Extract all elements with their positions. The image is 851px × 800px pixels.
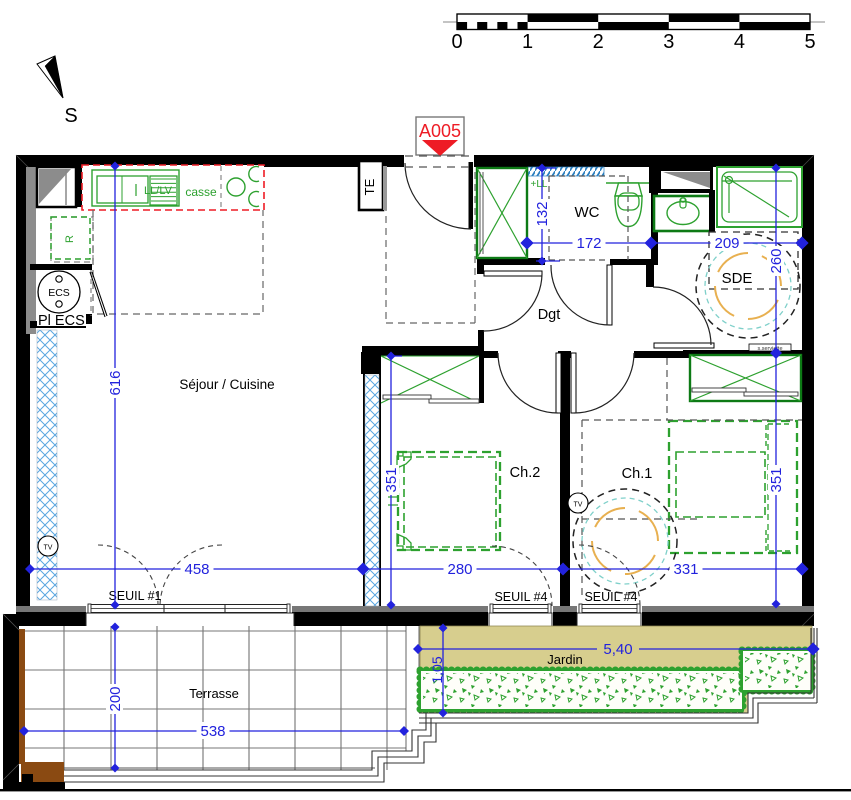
svg-text:172: 172 [576, 235, 601, 252]
svg-text:4: 4 [734, 31, 745, 53]
svg-text:458: 458 [184, 561, 209, 578]
svg-text:+LL: +LL [531, 179, 548, 190]
svg-text:Séjour / Cuisine: Séjour / Cuisine [179, 377, 274, 392]
svg-text:casse: casse [185, 185, 217, 199]
svg-text:616: 616 [107, 370, 124, 395]
svg-text:132: 132 [534, 201, 551, 226]
svg-text:Terrasse: Terrasse [189, 686, 239, 701]
svg-text:R: R [64, 235, 76, 243]
svg-text:WC: WC [575, 204, 600, 221]
svg-text:Ch.2: Ch.2 [510, 465, 541, 481]
svg-text:209: 209 [714, 235, 739, 252]
svg-text:TV: TV [574, 502, 583, 509]
svg-text:Ch.1: Ch.1 [622, 466, 653, 482]
svg-text:LL/LV: LL/LV [144, 185, 173, 197]
svg-text:Pl ECS: Pl ECS [38, 313, 85, 329]
svg-text:1,05: 1,05 [429, 656, 445, 683]
svg-text:200: 200 [107, 686, 124, 711]
svg-text:SEUIL #1: SEUIL #1 [108, 589, 161, 603]
svg-text:280: 280 [447, 561, 472, 578]
svg-text:TV: TV [44, 545, 53, 552]
svg-text:3: 3 [663, 31, 674, 53]
svg-text:331: 331 [673, 561, 698, 578]
svg-text:Jardin: Jardin [547, 652, 582, 667]
svg-text:260: 260 [768, 248, 785, 273]
svg-text:2: 2 [593, 31, 604, 53]
svg-text:ECS: ECS [48, 287, 70, 299]
svg-text:S: S [64, 105, 77, 127]
svg-text:0: 0 [451, 31, 462, 53]
svg-text:SEUIL #4: SEUIL #4 [584, 590, 637, 604]
svg-text:SEUIL #4: SEUIL #4 [494, 590, 547, 604]
svg-text:351: 351 [383, 467, 400, 492]
svg-text:5: 5 [804, 31, 815, 53]
svg-text:5,40: 5,40 [603, 641, 632, 658]
svg-text:1: 1 [522, 31, 533, 53]
svg-text:351: 351 [768, 467, 785, 492]
svg-text:TE: TE [362, 178, 377, 195]
svg-text:Dgt: Dgt [538, 307, 561, 323]
svg-text:SDE: SDE [722, 270, 753, 287]
svg-text:538: 538 [200, 723, 225, 740]
svg-text:A005: A005 [419, 121, 461, 141]
